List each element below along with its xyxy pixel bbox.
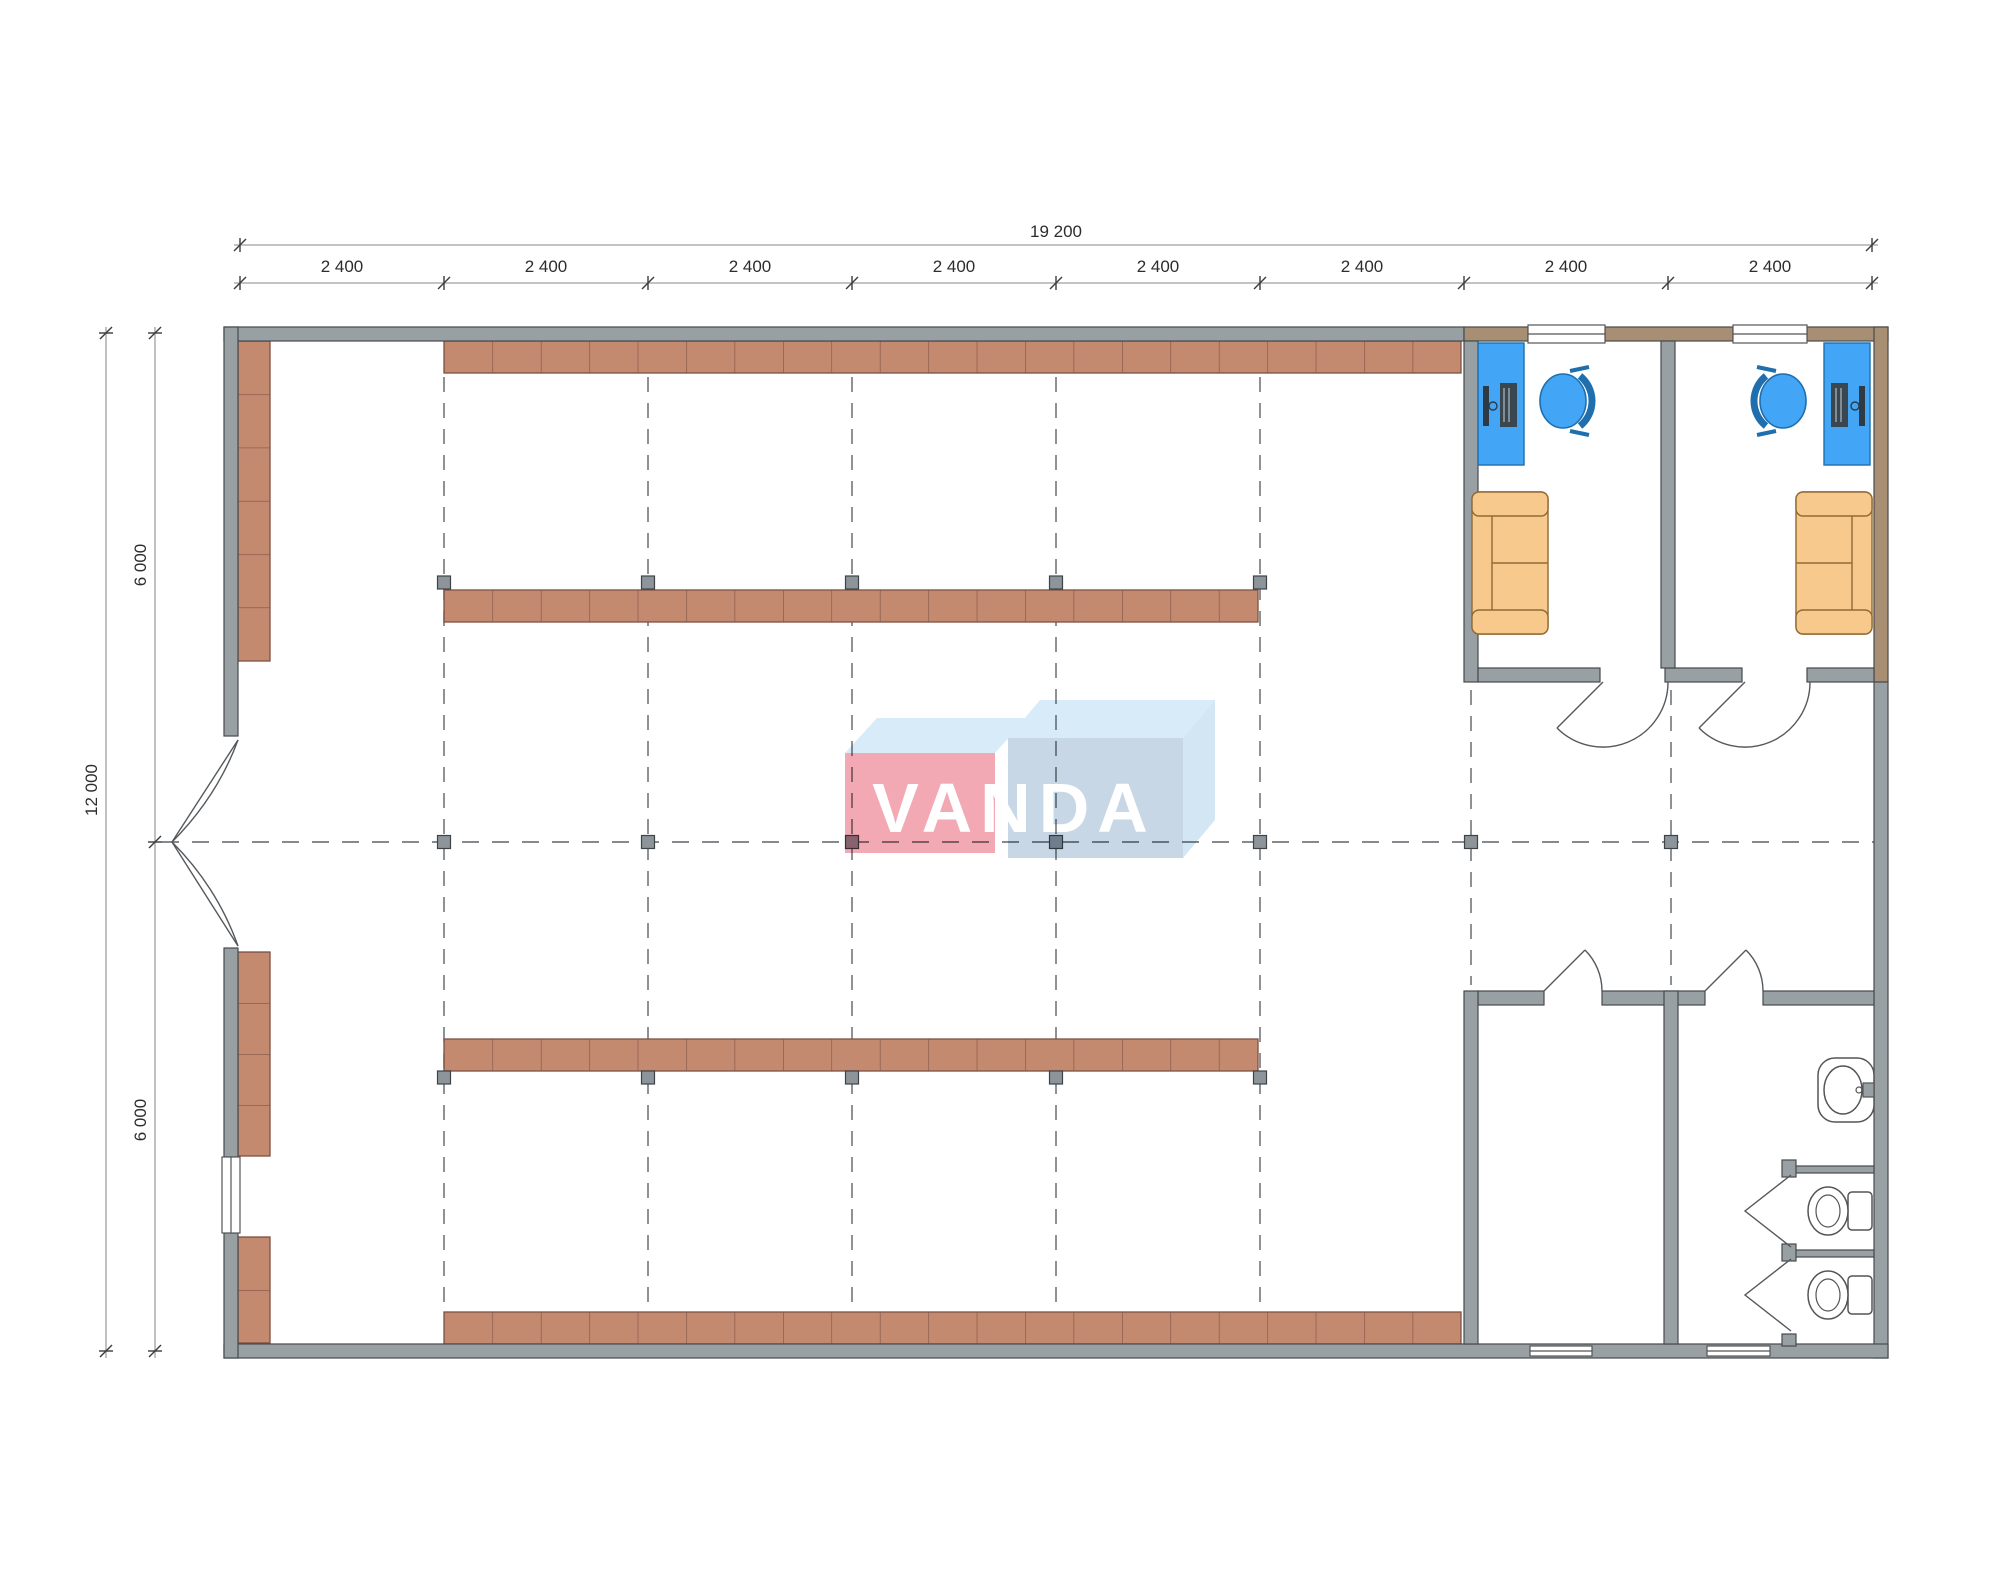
- floor-plan-canvas: 19 200 2 400 2 400 2 400 2 400 2 400 2 4…: [0, 0, 2000, 1574]
- logo-pink-top-face: [845, 718, 1027, 753]
- vanda-watermark: VANDA: [0, 0, 2000, 1574]
- logo-blue-top-face: [1008, 700, 1215, 738]
- vanda-logo-text: VANDA: [872, 769, 1156, 847]
